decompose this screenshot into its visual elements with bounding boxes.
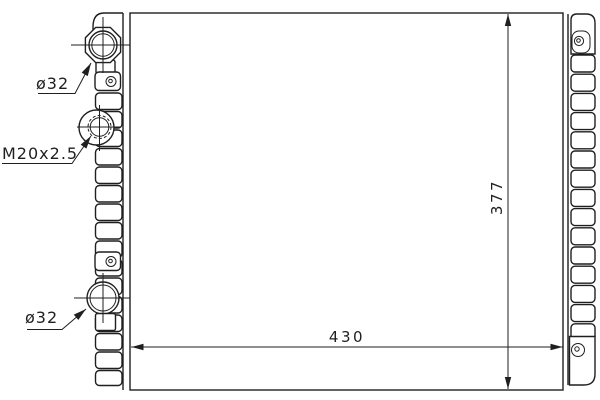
upper-right-mount-tab xyxy=(571,14,595,54)
lower-right-mount-tab xyxy=(570,337,596,386)
line-art-layer xyxy=(0,0,600,400)
radiator-technical-drawing: ø32 M20x2.5 ø32 430 377 xyxy=(0,0,600,400)
right-tank-ribs xyxy=(571,55,595,341)
label-bottom-port-diameter: ø32 xyxy=(25,308,58,327)
lower-left-mount-tab xyxy=(95,252,121,271)
label-drain-plug-thread: M20x2.5 xyxy=(2,144,78,163)
label-core-height-dimension: 377 xyxy=(488,157,504,237)
left-tank xyxy=(71,13,130,386)
label-core-width-dimension: 430 xyxy=(307,328,387,346)
right-tank xyxy=(570,14,596,385)
label-top-port-diameter: ø32 xyxy=(36,74,69,93)
upper-left-mount-tab xyxy=(95,72,121,91)
